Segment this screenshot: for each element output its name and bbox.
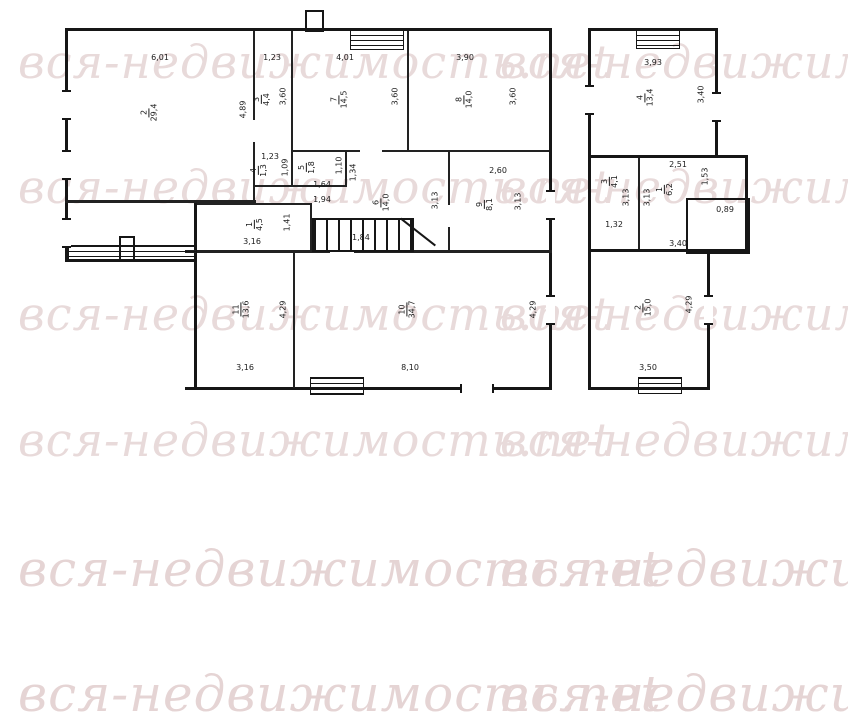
room7-width: 4,01 xyxy=(310,53,380,62)
b2-entry-dim: 0,89 xyxy=(705,205,745,214)
window xyxy=(460,384,494,393)
b1-wall-v-407 xyxy=(407,31,409,150)
room9-number: 9 xyxy=(475,200,485,209)
door-gap xyxy=(253,120,255,142)
room1-width: 3,16 xyxy=(222,237,282,246)
room3-number: 3 xyxy=(252,95,262,104)
window xyxy=(704,295,713,325)
room9-label: 9 8,1 xyxy=(475,198,494,211)
room9-area: 8,1 xyxy=(485,198,494,211)
b2-room3-number: 3 xyxy=(600,177,610,186)
scanned-floor-plan-page: { "watermark": { "text": "вся-недвижимос… xyxy=(0,0,848,709)
room5-height: 1,10 xyxy=(335,153,344,179)
b1-wall-v-293 xyxy=(293,252,295,388)
b2-room3-width: 1,32 xyxy=(594,220,634,229)
room4-height: 1,09 xyxy=(281,155,290,181)
b2-room1-label: 1 6,2 xyxy=(655,183,674,196)
room5-width: 1,64 xyxy=(298,180,346,189)
b2-mid-block-top xyxy=(588,155,748,158)
b2-room1-number: 1 xyxy=(655,185,665,194)
window xyxy=(546,190,555,220)
b2-room1-bottom: 3,40 xyxy=(648,239,708,248)
b2-room4-area: 13,4 xyxy=(645,89,654,107)
staircase-dim: 1,84 xyxy=(352,233,370,242)
room10-label: 10 34,7 xyxy=(397,301,416,319)
room10-width: 8,10 xyxy=(370,363,450,372)
room2-number: 2 xyxy=(139,108,149,117)
room8-area: 14,0 xyxy=(464,91,473,109)
b1-wall-bottom xyxy=(185,387,552,390)
room3-width: 1,23 xyxy=(252,53,292,62)
room11-label: 11 13,6 xyxy=(231,301,250,319)
window xyxy=(712,92,721,122)
room4-label: 4 1,3 xyxy=(249,164,268,177)
room4-number: 4 xyxy=(249,166,259,175)
b2-room4-number: 4 xyxy=(635,93,645,102)
b1-wall-corridor-top xyxy=(197,203,312,205)
room5-number: 5 xyxy=(297,163,307,172)
room10-height: 4,29 xyxy=(529,297,538,323)
b1-wall-step xyxy=(194,203,197,390)
room7-number: 7 xyxy=(329,95,339,104)
room5-label: 5 1,8 xyxy=(297,161,316,174)
dim-1-34: 1,34 xyxy=(349,160,358,186)
room7-label: 7 14,5 xyxy=(329,91,348,109)
room2-label: 2 29,4 xyxy=(139,104,158,122)
b2-room4-width: 3,93 xyxy=(618,58,688,67)
window xyxy=(585,85,594,115)
vent-hatch xyxy=(310,377,364,395)
room8-label: 8 14,0 xyxy=(454,91,473,109)
room11-area: 13,6 xyxy=(241,301,250,319)
vent-hatch xyxy=(350,29,404,50)
room6-number: 6 xyxy=(371,198,381,207)
b1-wall-v-448 xyxy=(448,152,450,252)
window xyxy=(62,150,71,180)
room8-number: 8 xyxy=(454,95,464,104)
b2-room1-side: 1,53 xyxy=(701,164,710,190)
b2-room4-height: 3,40 xyxy=(697,82,706,108)
room11-height: 4,29 xyxy=(279,297,288,323)
b2-room1-width: 2,51 xyxy=(648,160,708,169)
window xyxy=(62,90,71,120)
b2-mid-block-left xyxy=(588,155,591,252)
b2-room3-label: 3 4,1 xyxy=(600,175,619,188)
room3-label: 3 4,4 xyxy=(252,93,271,106)
room2-width: 6,01 xyxy=(120,53,200,62)
room1-label: 1 4,5 xyxy=(245,218,264,231)
room11-number: 11 xyxy=(231,302,241,316)
room6-label: 6 14,0 xyxy=(371,194,390,212)
b2-room1-area: 6,2 xyxy=(665,183,674,196)
room1-height: 1,41 xyxy=(283,210,292,236)
vent-hatch xyxy=(638,377,682,394)
vent-hatch xyxy=(636,29,680,49)
room2-height: 4,89 xyxy=(239,95,248,125)
room3-height: 3,60 xyxy=(279,84,288,110)
room1-area: 4,5 xyxy=(255,218,264,231)
b2-room2-number: 2 xyxy=(633,303,643,312)
b2-bot-block-left xyxy=(588,249,591,390)
room1-number: 1 xyxy=(245,220,255,229)
room8-width: 3,90 xyxy=(430,53,500,62)
room9-height: 3,13 xyxy=(514,189,523,215)
b2-room2-label: 2 15,0 xyxy=(633,299,652,317)
b2-room3-height: 3,13 xyxy=(622,185,631,211)
room2-area: 29,4 xyxy=(149,104,158,122)
room11-width: 3,16 xyxy=(215,363,275,372)
b2-room2-height: 4,29 xyxy=(685,292,694,318)
room10-number: 10 xyxy=(397,302,407,316)
b2-room1-side2: 3,13 xyxy=(643,185,652,211)
window xyxy=(546,295,555,325)
room7-area: 14,5 xyxy=(339,91,348,109)
b2-room2-area: 15,0 xyxy=(643,299,652,317)
porch-pillar xyxy=(119,236,135,261)
dim-1-94: 1,94 xyxy=(296,195,348,204)
b2-room3-area: 4,1 xyxy=(610,175,619,188)
b1-wall-h-150 xyxy=(291,150,549,152)
b2-room2-width: 3,50 xyxy=(618,363,678,372)
room6-area: 14,0 xyxy=(381,194,390,212)
b2-room4-label: 4 13,4 xyxy=(635,89,654,107)
room5-area: 1,8 xyxy=(307,161,316,174)
window xyxy=(62,218,71,248)
room4-area: 1,3 xyxy=(259,164,268,177)
room7-height: 3,60 xyxy=(391,84,400,110)
room9-width: 2,60 xyxy=(468,166,528,175)
room8-height: 3,60 xyxy=(509,84,518,110)
floor-plan: 1,84 6,01 4,89 2 29,4 1,23 3,60 3 4,4 4,… xyxy=(0,0,848,709)
room10-area: 34,7 xyxy=(407,301,416,319)
chimney-box xyxy=(305,10,324,32)
door-gap xyxy=(448,205,450,227)
door-gap xyxy=(360,150,382,152)
room6-height: 3,13 xyxy=(431,188,440,214)
room3-area: 4,4 xyxy=(262,93,271,106)
b2-wall-v-638 xyxy=(638,158,640,249)
